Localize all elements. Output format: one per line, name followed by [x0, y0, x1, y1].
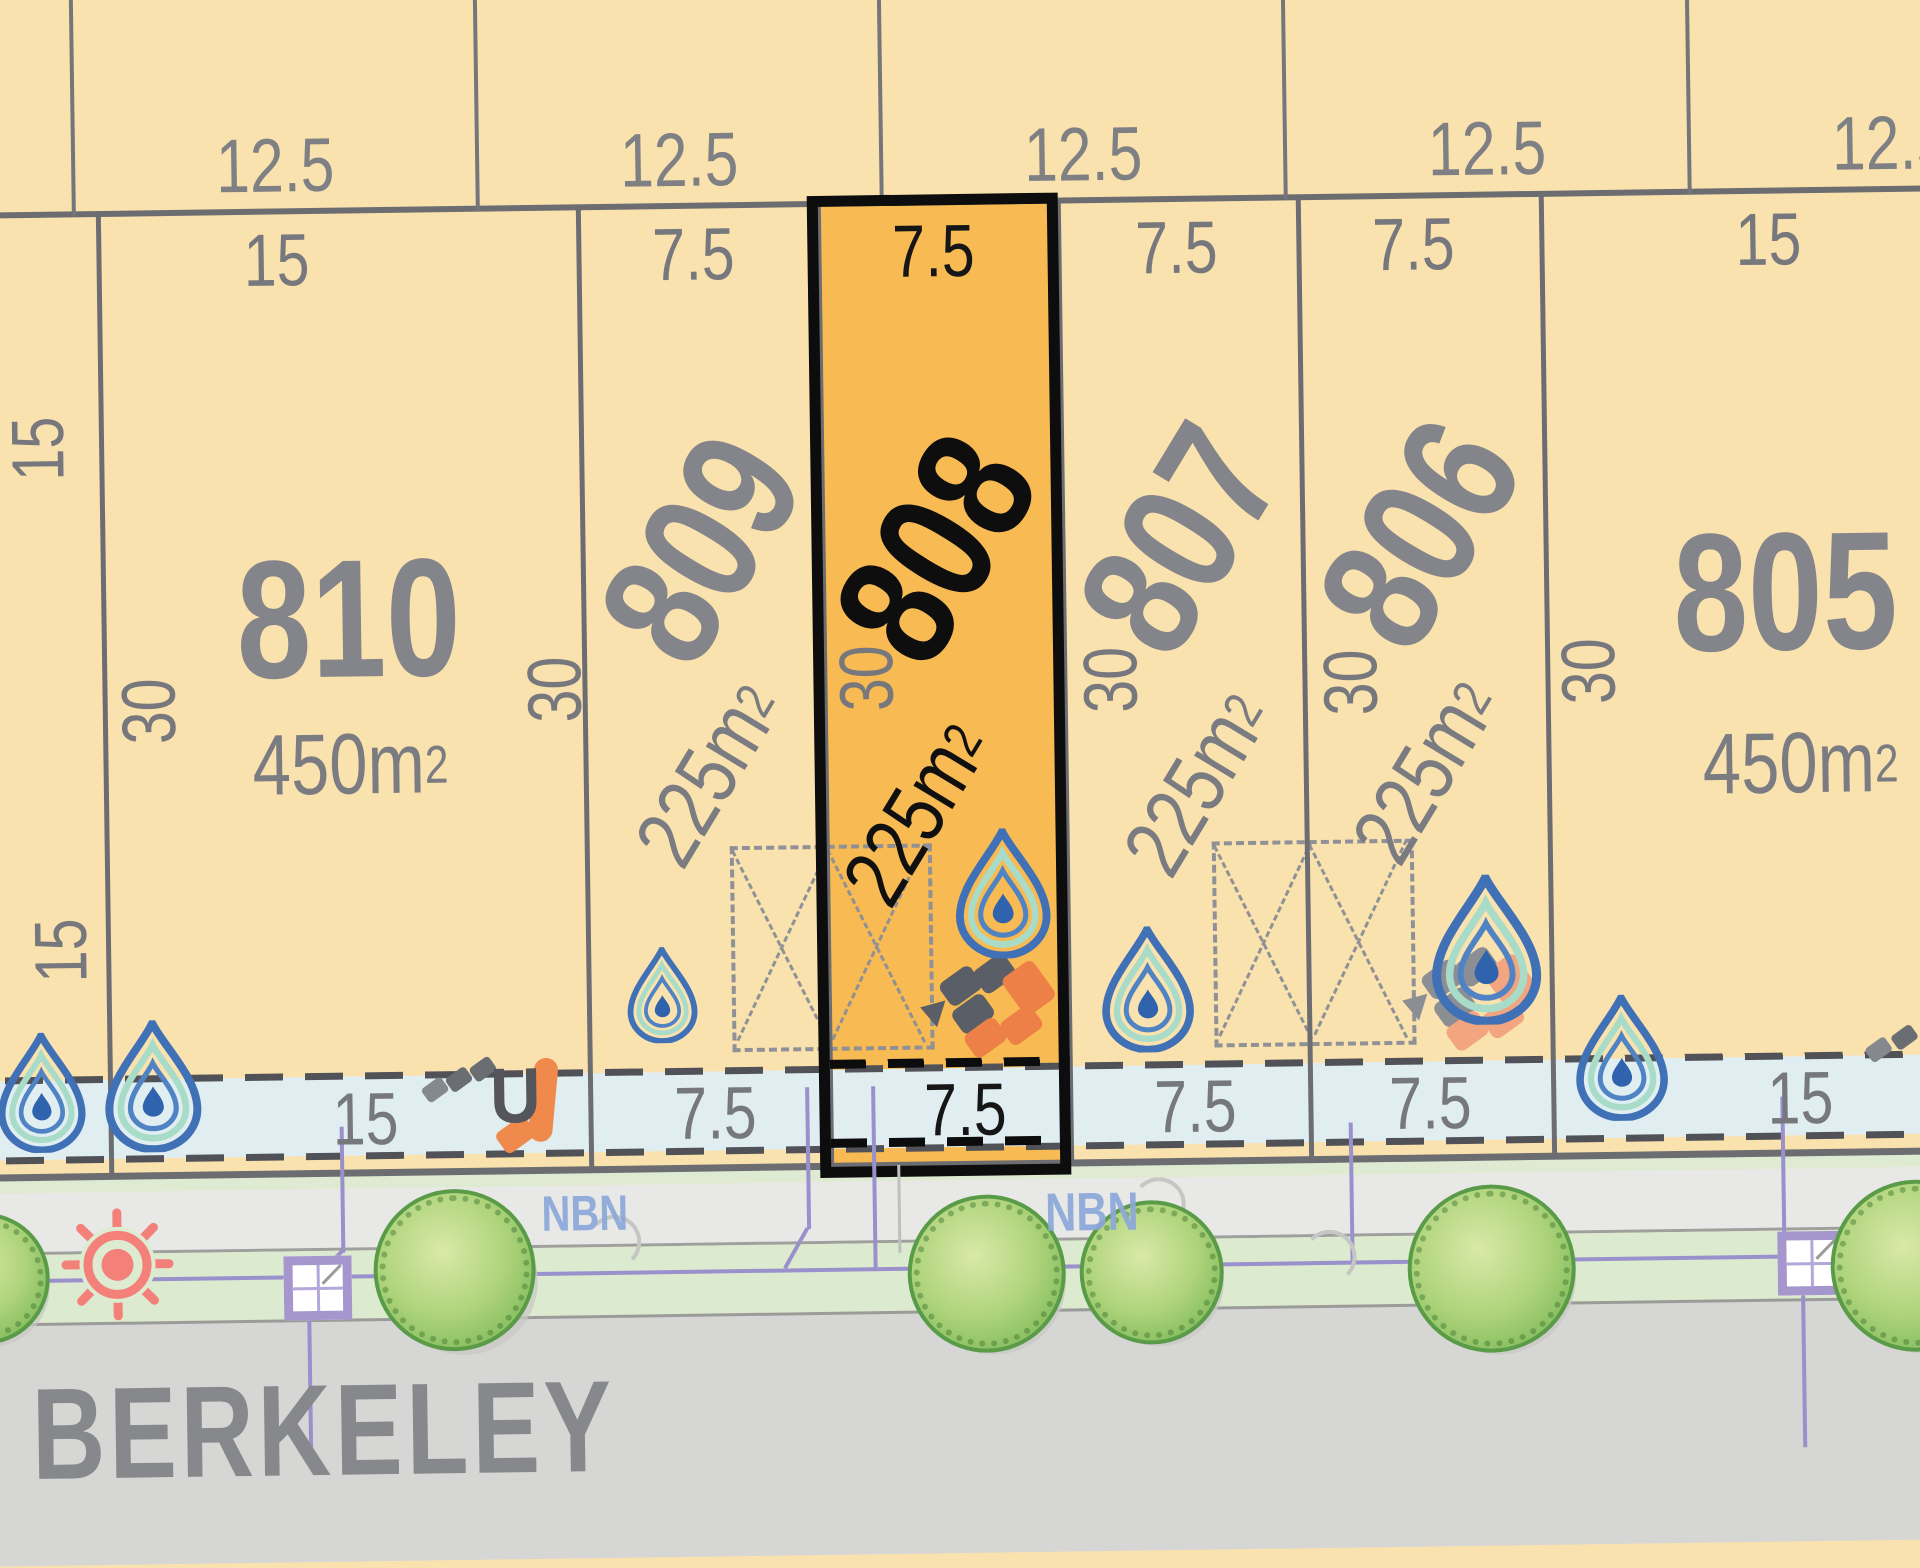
pit-divider: [293, 1286, 343, 1290]
pit-divider: [322, 1264, 342, 1285]
dimension-label: 12.5: [216, 128, 335, 206]
pit-divider: [1787, 1261, 1837, 1265]
water-droplet-icon: [0, 1032, 88, 1153]
street-name: BERKELEY: [31, 1361, 616, 1499]
nbn-label: NBN: [1045, 1185, 1139, 1240]
lot-807-region[interactable]: [1058, 197, 1311, 1160]
upper-lot-boundary: [1280, 0, 1287, 199]
service-pit-icon: [283, 1256, 352, 1321]
upper-lot-boundary: [1684, 0, 1691, 194]
lot-808-region[interactable]: [818, 201, 1071, 1164]
dimension-label: 15: [24, 918, 99, 983]
dimension-label: 12.5: [1427, 111, 1546, 189]
lot-805-region[interactable]: [1541, 189, 1920, 1154]
upper-lot-boundary: [472, 0, 479, 211]
subdivision-plan: U 12.5 12.5 12.5 12.5 12.5 15 7.5 7.5 7.…: [0, 0, 1920, 1453]
dimension-label: 12.5: [1831, 105, 1920, 183]
dimension-label: 15: [1, 416, 76, 481]
lot-806-region[interactable]: [1298, 194, 1554, 1157]
street-light-icon: [59, 1206, 177, 1324]
nbn-label: NBN: [541, 1188, 628, 1239]
dimension-label: 12.5: [619, 122, 738, 200]
upper-lot-boundary: [876, 0, 883, 205]
lot-810-region[interactable]: [98, 207, 591, 1174]
lot-809-region[interactable]: [578, 204, 831, 1167]
upper-lot-boundary: [68, 0, 75, 216]
dimension-label: 12.5: [1023, 116, 1142, 194]
